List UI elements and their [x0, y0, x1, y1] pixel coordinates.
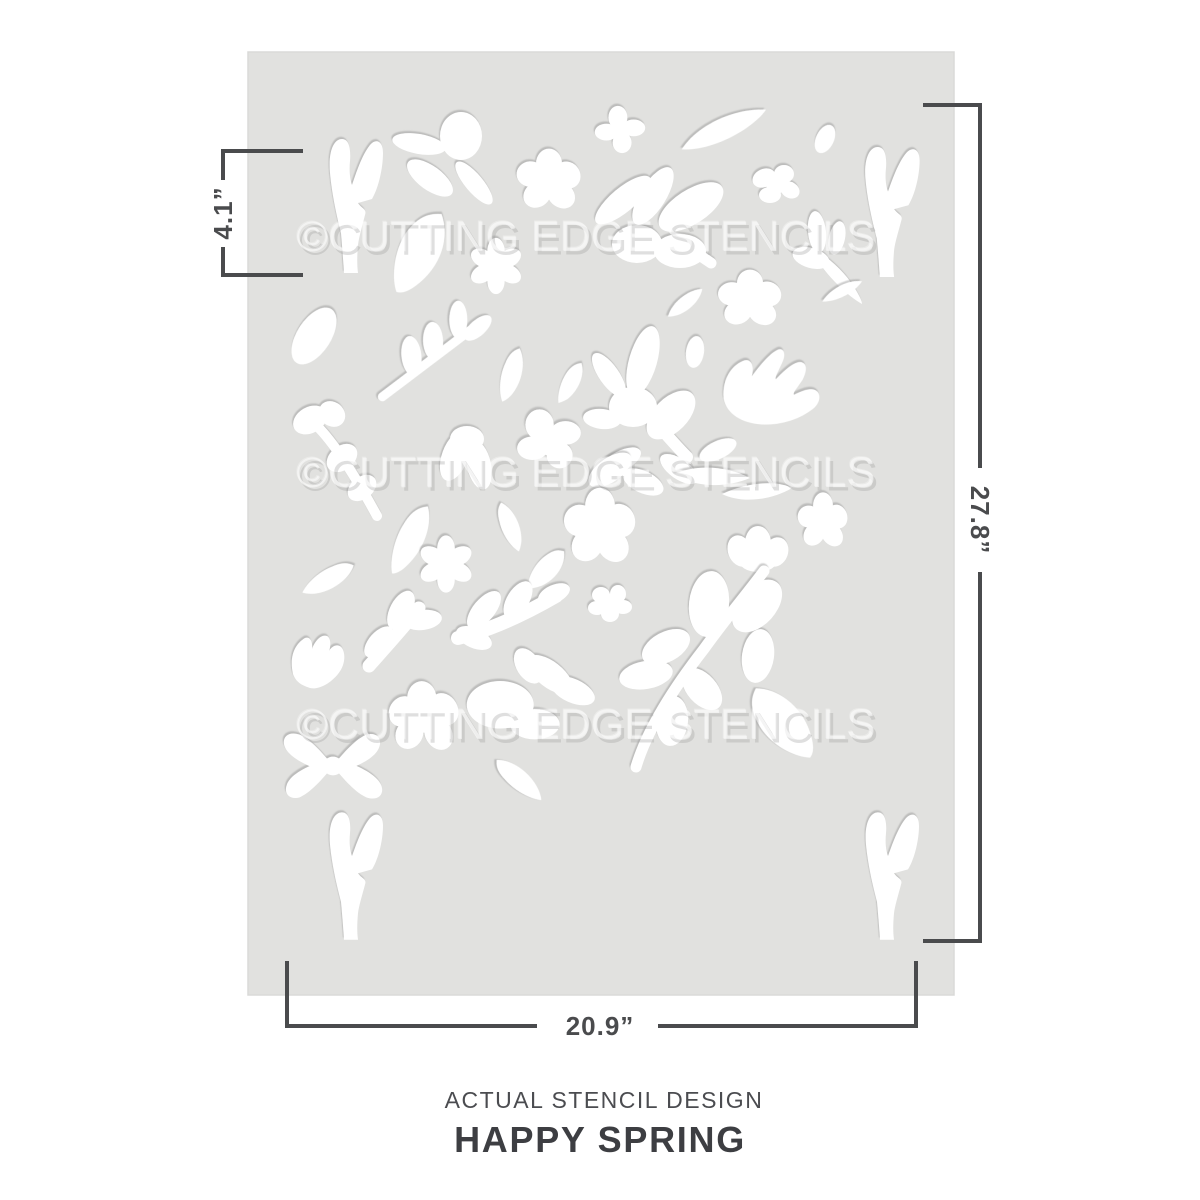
svg-text:©CUTTING EDGE STENCILS: ©CUTTING EDGE STENCILS — [297, 213, 876, 261]
svg-text:4.1”: 4.1” — [208, 186, 238, 239]
svg-text:ACTUAL STENCIL DESIGN: ACTUAL STENCIL DESIGN — [445, 1087, 764, 1113]
svg-text:©CUTTING EDGE STENCILS: ©CUTTING EDGE STENCILS — [297, 701, 876, 749]
svg-text:HAPPY SPRING: HAPPY SPRING — [454, 1119, 746, 1160]
svg-text:20.9”: 20.9” — [566, 1011, 635, 1041]
svg-text:27.8”: 27.8” — [965, 486, 995, 555]
svg-text:©CUTTING EDGE STENCILS: ©CUTTING EDGE STENCILS — [297, 449, 876, 497]
